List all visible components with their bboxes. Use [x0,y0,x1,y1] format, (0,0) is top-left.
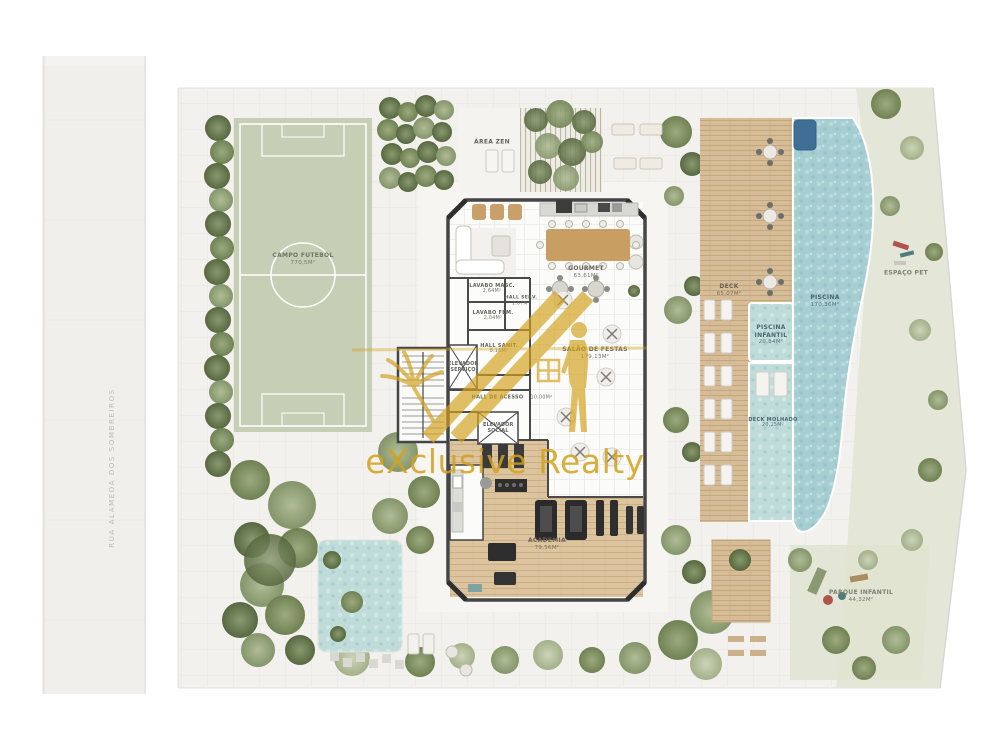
logo-bar-icon [428,296,560,438]
label-parque-infantil-area: 44,32m² [829,596,893,603]
label-gourmet: Gourmet 63,61m² [568,265,604,279]
street-name-text: RUA ALAMEDA DOS SOMBREIROS [108,388,116,548]
logo-window-icon [538,360,559,381]
street-name: RUA ALAMEDA DOS SOMBREIROS [108,388,116,548]
logo-person-icon [561,322,588,432]
label-campo-futebol-text: Campo Futebol [272,252,333,259]
label-gourmet-area: 63,61m² [568,272,604,279]
label-deck-area: 65,07m² [717,290,742,297]
label-academia-area: 79,56m² [528,544,566,551]
label-piscina-area: 170,36m² [810,301,839,308]
label-espaco-pet-text: Espaço Pet [884,269,928,276]
label-espaco-pet: Espaço Pet [884,269,928,277]
label-piscina-infantil: Piscina Infantil 20,84m² [748,324,794,346]
label-parque-infantil-text: Parque Infantil [829,589,893,596]
label-academia: Academia 79,56m² [528,537,566,551]
logo-baseline [352,348,647,350]
label-deck-molhado-area: 20,25m² [748,423,797,429]
label-piscina-infantil-text: Piscina Infantil [755,324,788,339]
label-area-zen-text: Área Zen [474,138,510,145]
gourmet-furniture [537,200,640,270]
label-campo-futebol-area: 770,5m² [272,259,333,266]
site-plan: RUA ALAMEDA DOS SOMBREIROS Campo Futebol… [0,0,1000,750]
label-piscina: Piscina 170,36m² [810,294,839,308]
watermark: eXclusive Realty [352,288,658,481]
label-academia-text: Academia [528,537,566,544]
label-piscina-infantil-area: 20,84m² [748,339,794,346]
label-piscina-text: Piscina [810,294,839,301]
label-area-zen: Área Zen [474,138,510,146]
logo-palm-icon [382,352,442,430]
label-deck-molhado: Deck Molhado 20,25m² [748,417,797,429]
sidewalk [42,56,146,694]
watermark-brand: eXclusive Realty [352,442,658,481]
label-deck: Deck 65,07m² [717,283,742,297]
label-campo-futebol: Campo Futebol 770,5m² [272,252,333,266]
watermark-logo [352,288,658,448]
label-deck-text: Deck [719,283,738,290]
label-gourmet-text: Gourmet [568,265,604,272]
label-parque-infantil: Parque Infantil 44,32m² [829,589,893,603]
